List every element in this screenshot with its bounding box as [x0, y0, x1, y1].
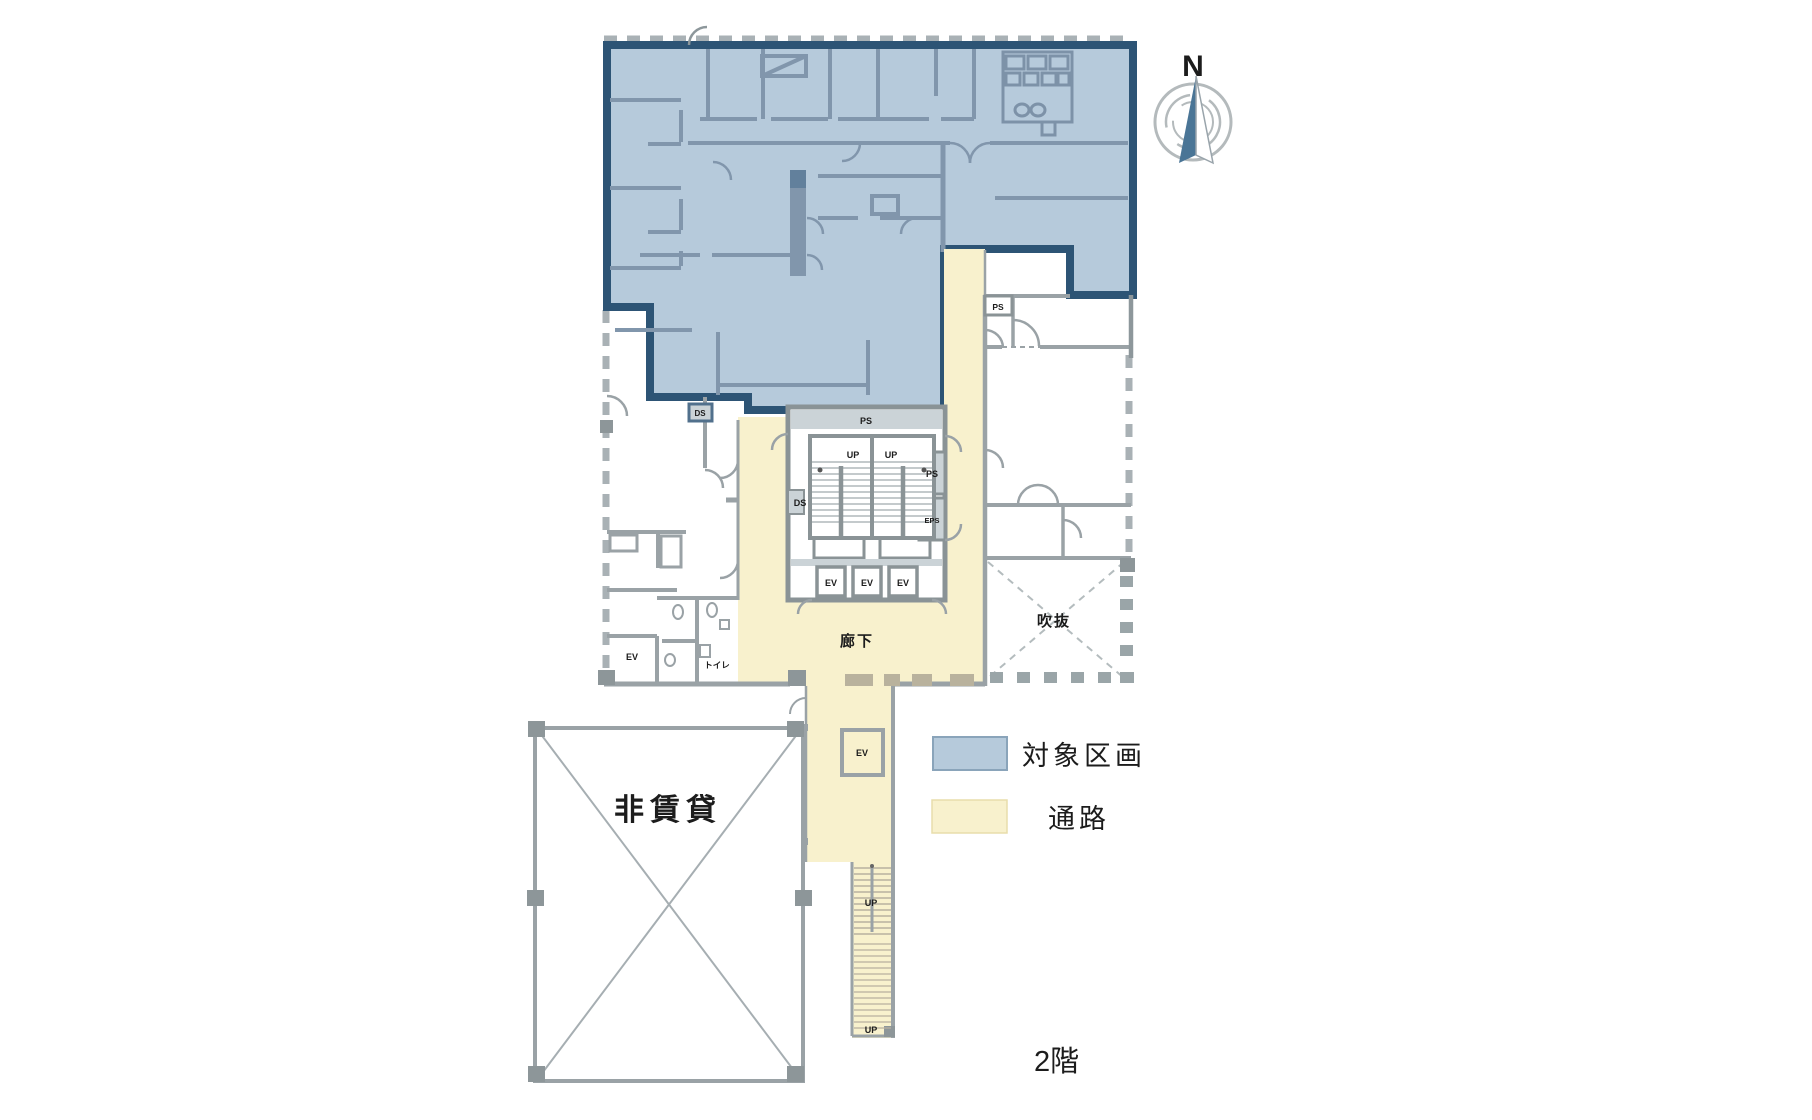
wall-column: [600, 420, 613, 433]
core-ps-label: PS: [860, 416, 872, 426]
stair-arrow: [870, 864, 874, 868]
compass-needle-dark: [1179, 76, 1196, 163]
annex-stairs-lower: [854, 944, 891, 1028]
annex-up-label: UP: [865, 1025, 878, 1035]
core-up-label: UP: [847, 450, 860, 460]
toilet-label: トイレ: [704, 660, 730, 670]
annex-ev-label: EV: [856, 748, 868, 758]
core-ps2-label: PS: [926, 469, 938, 479]
core-ds-box-label: DS: [694, 409, 706, 418]
core-up-label: UP: [885, 450, 898, 460]
non-rental-annex: [527, 698, 812, 1082]
central-shaft-cap: [790, 170, 806, 188]
legend-passage-label: 通路: [1048, 804, 1110, 834]
core-eps-label: EPS: [924, 516, 939, 525]
core-ev-label: EV: [897, 578, 909, 588]
right-ps-label: PS: [992, 302, 1004, 312]
compass-north-label: N: [1182, 50, 1204, 83]
legend-swatch-target: [933, 737, 1007, 770]
compass: [1155, 76, 1231, 163]
right-rooms-walls: [985, 295, 1131, 558]
floor-label: 2階: [1034, 1046, 1079, 1078]
legend: [932, 737, 1007, 833]
wall-column: [788, 670, 806, 686]
corridor-label: 廊下: [840, 632, 874, 650]
core-ev-label: EV: [861, 578, 873, 588]
floor-plan-page: EV トイレ EV UP UP: [0, 0, 1812, 1120]
atrium-label: 吹抜: [1037, 612, 1071, 630]
wall-column: [598, 670, 615, 685]
core-ds-label: DS: [794, 498, 807, 508]
non-rental-label: 非賃貸: [614, 793, 722, 827]
legend-target-label: 対象区画: [1022, 741, 1146, 771]
floor-plan-drawing: EV トイレ EV UP UP: [0, 0, 1812, 1120]
left-ev-label: EV: [626, 652, 638, 662]
legend-swatch-passage: [932, 800, 1007, 833]
annex-up-label: UP: [865, 898, 878, 908]
core-ev-label: EV: [825, 578, 837, 588]
